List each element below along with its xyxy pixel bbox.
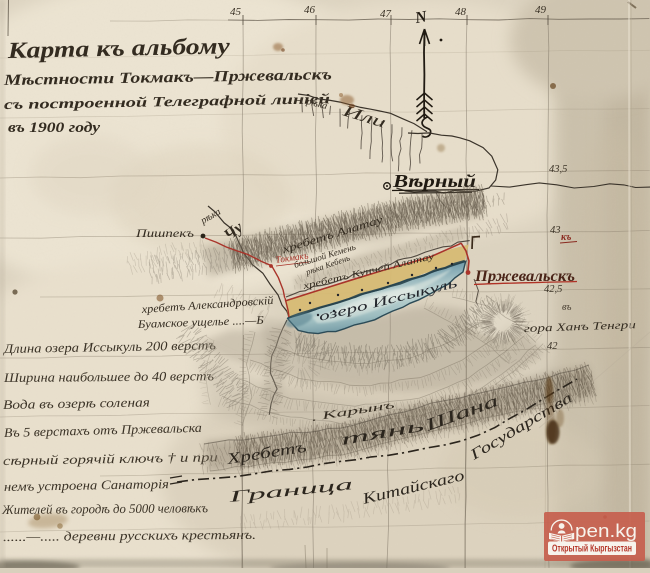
svg-text:Жителей въ городѣ до 5000 чело: Жителей въ городѣ до 5000 человѣкъ (1, 500, 208, 517)
svg-text:45: 45 (230, 6, 242, 18)
svg-text:въ 1900 году: въ 1900 году (8, 120, 100, 136)
svg-text:Открытый Кыргызстан: Открытый Кыргызстан (552, 544, 632, 555)
svg-text:Ширина наибольшее до 40 верстъ: Ширина наибольшее до 40 верстъ (3, 368, 214, 385)
svg-text:48: 48 (455, 6, 467, 18)
svg-text:46: 46 (304, 4, 316, 16)
svg-text:Карта къ альбому: Карта къ альбому (6, 33, 231, 63)
svg-text:42,5: 42,5 (544, 284, 562, 295)
svg-text:47: 47 (380, 8, 392, 20)
svg-text:43,5: 43,5 (549, 164, 567, 175)
svg-text:немъ устроена Санаторія: немъ устроена Санаторія (4, 476, 169, 494)
svg-text:49: 49 (535, 4, 547, 16)
svg-text:въ: въ (562, 302, 571, 313)
svg-text:Вода въ озерѣ соленая: Вода въ озерѣ соленая (3, 394, 150, 412)
svg-text:Вѣрный: Вѣрный (392, 171, 476, 191)
svg-text:43: 43 (550, 225, 561, 236)
svg-text:pen.kg: pen.kg (575, 521, 637, 541)
svg-text:......—..... деревни русскихъ: ......—..... деревни русскихъ крестьянъ. (3, 527, 256, 544)
svg-text:42: 42 (547, 341, 558, 352)
svg-text:Пишпекъ: Пишпекъ (135, 226, 194, 240)
svg-text:къ: къ (561, 232, 571, 243)
